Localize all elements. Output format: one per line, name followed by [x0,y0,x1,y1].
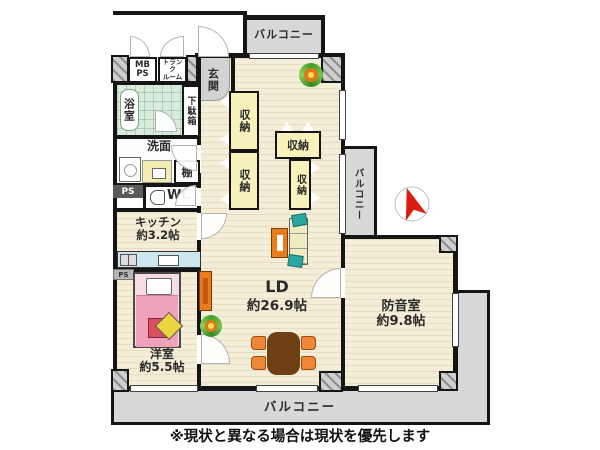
pipe-space-upper: PS [113,185,143,198]
storage-b-label: 収納 [236,169,252,193]
storage-a-door-fold [220,96,229,108]
storage-a-label: 収納 [236,109,252,133]
storage-c-door-fold2 [302,122,314,131]
trunk-room-box: トランク ルーム [158,57,187,83]
window-western-bottom [130,385,198,392]
kitchen-sink-icon [158,255,179,266]
corridor-wall [113,11,247,15]
north-compass-icon [392,184,432,224]
getabako-label: 下駄箱 [185,96,198,126]
sofa-cushion [291,213,308,227]
western-size: 約5.5帖 [139,360,184,374]
soundproof-size: 約9.8帖 [376,314,425,329]
storage-d-door-fold [311,162,320,174]
balcony-top-label: バルコニー [247,29,321,41]
storage-b: 収納 [229,151,259,210]
chair [251,336,266,350]
kitchen-label: キッチン 約3.2帖 [122,216,194,242]
entrance-door-arc [198,26,229,57]
window-ld-top [249,53,319,59]
sofa-cushion2 [287,254,304,268]
soundproof-label: 防音室 約9.8帖 [366,300,436,329]
washing-machine-icon [119,157,141,182]
trunk-line1: トランク [163,58,183,73]
storage-b-door-fold [220,157,229,169]
toilet-icon [150,190,165,205]
kitchen-size: 約3.2帖 [136,228,179,242]
window-right-upper [339,90,346,140]
pillar-bottom-left [111,369,129,392]
ps-lower-label: PS [118,271,128,279]
storage-d-door-fold2 [311,192,320,204]
bed [133,272,181,348]
ld-label: LD 約26.9帖 [237,278,317,314]
pillar-trunk-right [186,55,198,83]
storage-d: 収納 [289,159,311,210]
plant-icon-2 [200,315,222,337]
wall-hall-stub [231,55,235,95]
pillar-top-right [321,55,343,83]
window-soundproof-right [452,293,459,347]
storage-c: 収納 [275,131,321,159]
chair2 [251,356,266,370]
trunk-door-arc [160,36,184,57]
pillar-ld-bottom-right [319,371,343,392]
floor-plan: バルコニー バルコニー バルコニー MB PS トランク ルーム 玄関 [0,0,600,450]
storage-a-door-fold2 [220,133,229,145]
sideboard [199,271,212,311]
plant-icon [299,63,323,87]
chair4 [301,356,316,370]
pipe-space-lower: PS [113,269,134,280]
western-name: 洋室 [150,347,174,361]
tv-board [271,228,288,258]
balcony-bottom-label: バルコニー [240,400,360,414]
balcony-right-lower [456,290,490,392]
shoe-cabinet: 下駄箱 [182,85,200,137]
storage-d-label: 収納 [293,174,308,196]
ld-name: LD [265,277,288,296]
chair3 [301,336,316,350]
ld-size: 約26.9帖 [247,298,307,314]
storage-c-label: 収納 [287,137,309,153]
pillar-top-left [111,55,129,83]
dining-table [267,332,300,375]
balcony-right-label: バルコニー [352,156,363,232]
door-opening-soundproof [341,268,345,298]
window-right-balcony [339,154,346,234]
ps-upper-label: PS [121,187,134,197]
soundproof-name: 防音室 [381,299,420,314]
wall-kitchen-top [113,208,201,212]
bed-pillow [146,278,172,295]
western-label: 洋室 約5.5帖 [130,348,194,375]
meter-box: MB PS [128,57,157,83]
mbps-line2: PS [136,69,148,79]
genkan-label: 玄関 [206,62,218,98]
window-soundproof-bottom [358,385,438,392]
stove-icon [120,254,137,266]
door-opening-wc [197,188,201,206]
pillar-snd-top-right [439,235,458,253]
storage-b-door-fold2 [220,193,229,205]
storage-a: 収納 [229,91,259,151]
trunk-line2: ルーム [163,73,182,81]
wash-sink-icon [142,160,172,183]
storage-c-door-fold [281,122,293,131]
window-ld-bottom [256,385,318,392]
bath-label: 浴室 [122,93,134,127]
disclaimer-note: ※現状と異なる場合は現状を優先します [80,429,520,445]
meter-door-arc [130,36,150,57]
pillar-snd-bottom-right [439,371,458,391]
wall-left [113,55,117,392]
wall-wc-left [143,185,146,210]
